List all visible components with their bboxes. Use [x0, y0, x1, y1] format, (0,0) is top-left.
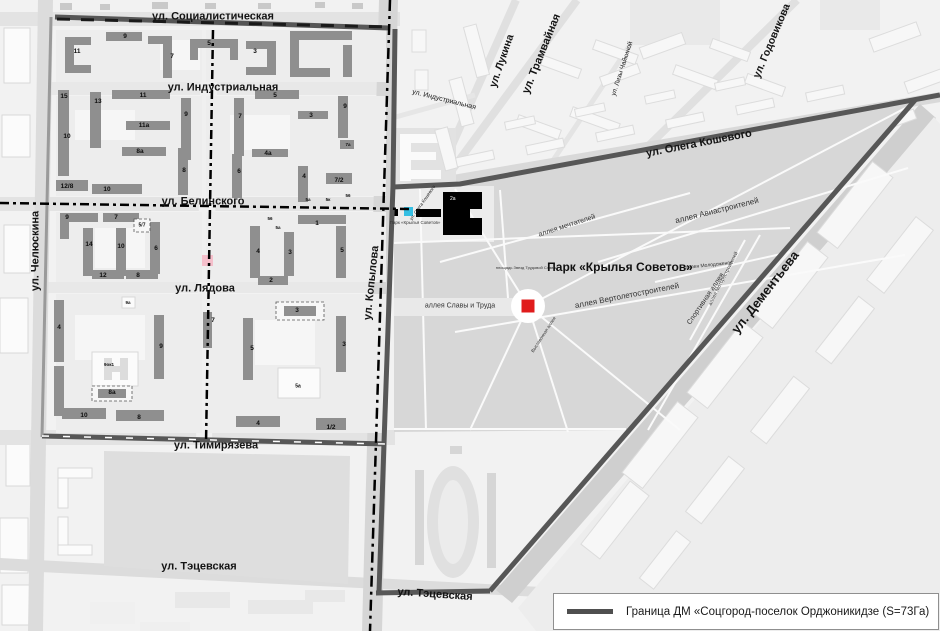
- street-label: ул. Тимирязева: [174, 441, 258, 452]
- building-number: 5/7: [139, 224, 146, 229]
- alley-label: аллея Моторостроителей: [708, 251, 739, 306]
- labels-layer: ул. Социалистическаяул. Индустриальнаяул…: [0, 0, 940, 631]
- building-number: 1: [315, 221, 319, 228]
- building-number: 10: [63, 134, 70, 141]
- alley-label: аллея мечтателей: [538, 213, 597, 238]
- street-label: ул. Тэцевская: [161, 562, 236, 573]
- building-number: 4а: [264, 151, 271, 158]
- alley-label: аллея Авиастроителей: [674, 197, 759, 225]
- building-number: 11а: [139, 123, 150, 130]
- building-number: 10: [117, 244, 124, 251]
- building-number: 7: [211, 318, 215, 325]
- building-number: 56: [345, 194, 350, 199]
- building-number: 14: [85, 242, 92, 249]
- building-number: 2: [269, 278, 273, 285]
- alley-label: Парк «Крылья Советов»: [390, 221, 441, 226]
- building-number: 8: [136, 273, 140, 280]
- street-label: ул. Челюскина: [31, 211, 42, 291]
- building-number: 11: [140, 93, 147, 100]
- building-number: 7а: [345, 143, 350, 148]
- building-number: 3: [295, 308, 299, 315]
- street-label: ул. Трамвайная: [521, 13, 563, 96]
- building-number: 3: [342, 342, 346, 349]
- map-canvas: ул. Социалистическаяул. Индустриальнаяул…: [0, 0, 940, 631]
- alley-label: аллея Вертолетостроителей: [574, 282, 680, 310]
- building-number: 5а: [295, 385, 301, 390]
- building-number: 7/2: [334, 178, 343, 185]
- building-number: 56: [267, 217, 272, 222]
- dk-building-number: 2а: [450, 197, 456, 202]
- building-number: 5к: [326, 198, 331, 203]
- building-number: 7: [114, 215, 118, 222]
- building-number: 11: [74, 49, 81, 56]
- building-number: 4: [256, 421, 260, 428]
- building-number: 4: [256, 249, 260, 256]
- alley-label: аллея Славы и Труда: [425, 303, 495, 310]
- building-number: 5: [207, 41, 211, 48]
- street-label: ул. Дементьева: [729, 248, 801, 335]
- street-label: ул. Копылова: [363, 245, 382, 321]
- building-number: 8: [137, 415, 141, 422]
- street-label: ул. Лядова: [175, 284, 235, 295]
- building-number: 5: [250, 346, 254, 353]
- building-number: 10: [103, 187, 110, 194]
- building-number: 9а: [125, 301, 130, 306]
- building-number: 13: [94, 99, 101, 106]
- building-number: 9ок1: [104, 363, 114, 368]
- street-label: ул. Тэцевская: [397, 587, 473, 603]
- building-number: 15: [60, 94, 67, 101]
- street-label: ул. Индустриальная: [411, 89, 476, 112]
- building-number: 5а: [305, 198, 310, 203]
- street-label: ул. Олега Кошевого: [645, 128, 753, 159]
- building-number: 6: [154, 246, 158, 253]
- street-label: ул. Олега Кошевого: [409, 185, 436, 221]
- legend-box: Граница ДМ «Соцгород-поселок Орджоникидз…: [553, 593, 939, 630]
- alley-label: Выставочная аллея: [531, 316, 557, 353]
- legend-label: Граница ДМ «Соцгород-поселок Орджоникидз…: [626, 606, 929, 618]
- legend-boundary-swatch: [567, 609, 613, 614]
- building-number: 4: [57, 325, 61, 332]
- building-number: 5: [273, 93, 277, 100]
- building-number: 8а: [108, 390, 115, 397]
- building-number: 12/8: [61, 184, 74, 191]
- street-label: ул. Индустриальная: [168, 83, 279, 94]
- building-number: 9: [123, 34, 127, 41]
- building-number: 10: [80, 413, 87, 420]
- building-number: 9: [65, 215, 69, 222]
- building-number: 1/2: [326, 425, 335, 432]
- building-number: 8: [182, 168, 186, 175]
- building-number: 8а: [136, 149, 143, 156]
- building-number: 3: [253, 49, 257, 56]
- street-label: ул. Лукина: [488, 33, 516, 89]
- building-number: 9: [184, 112, 188, 119]
- street-label: ул. Социалистическая: [152, 12, 274, 23]
- street-label: ул. Белинского: [162, 197, 245, 208]
- building-number: 9: [159, 344, 163, 351]
- building-number: 5: [340, 248, 344, 255]
- building-number: 3: [288, 250, 292, 257]
- building-number: 12: [99, 273, 106, 280]
- building-number: 5а: [275, 226, 280, 231]
- park-title: Парк «Крылья Советов»: [547, 261, 693, 273]
- building-number: 4: [302, 174, 306, 181]
- street-label: ул. Годовикова: [752, 2, 793, 79]
- building-number: 9: [343, 104, 347, 111]
- building-number: 7: [170, 54, 174, 61]
- building-number: 6: [237, 169, 241, 176]
- building-number: 3: [309, 113, 313, 120]
- building-number: 7: [238, 114, 242, 121]
- street-label: ул. Лизы Чайкиной: [611, 41, 635, 97]
